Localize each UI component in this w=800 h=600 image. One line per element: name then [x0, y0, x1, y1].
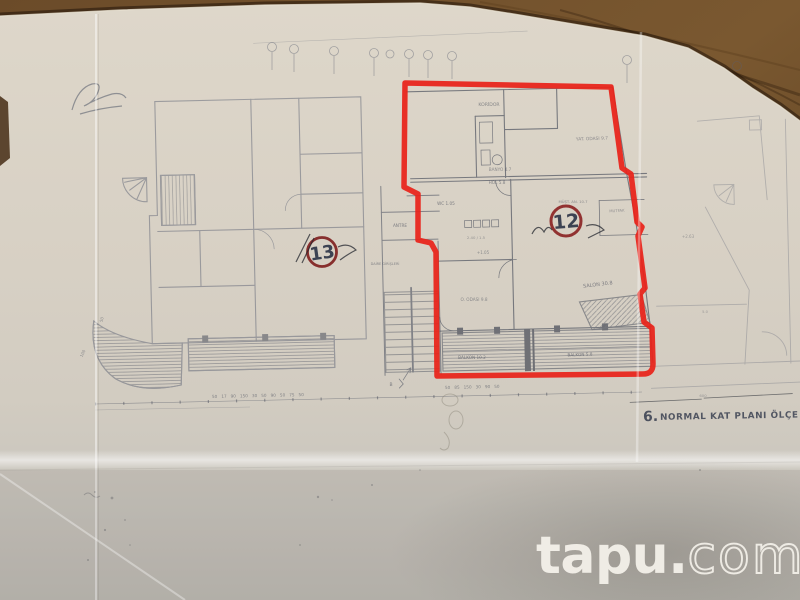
plan-room-label: 2.40 / 1.5 [467, 235, 486, 240]
unit-13-number: 13 [308, 241, 336, 265]
floor-plan-scene: 50 17 90 150 30 50 90 50 75 50 50 85 150… [0, 0, 800, 600]
plan-room-label: MUTFAK [609, 208, 625, 214]
plan-room-label: ANTRE [393, 223, 407, 228]
plan-room-label: 600 [699, 393, 707, 398]
plan-room-label: YAT. ODASI 9.7 [575, 135, 609, 142]
unit-12-number: 12 [552, 210, 580, 234]
plan-room-label: MÜŞT. AN. 10.7 [558, 199, 588, 204]
plan-room-label: KORİDOR [478, 101, 500, 108]
tapu-watermark: tapu.com [536, 526, 800, 586]
plan-room-label: BALKON 5.8 [567, 352, 593, 358]
plan-room-label: DAİRE GİRİŞLERİ [371, 261, 400, 266]
plan-room-label: WC 1.05 [437, 201, 455, 206]
plan-room-label: O. ODASI 9.8 [461, 297, 488, 302]
plan-room-label: +2.63 [682, 234, 695, 239]
watermark-dot: . [668, 526, 687, 586]
watermark-tapu: tapu [536, 526, 668, 586]
plan-room-label: HOL 5.8 [489, 180, 506, 185]
watermark-com: com [687, 526, 800, 586]
caption-number: 6. [643, 409, 658, 425]
plan-room-label: 5.0 [702, 310, 708, 314]
plan-room-label: BANYO 4.7 [489, 167, 512, 172]
plan-room-label: BALKON 10.2 [458, 355, 486, 360]
plan-room-label: B [389, 382, 392, 388]
photo-of-floor-plan: 50 17 90 150 30 50 90 50 75 50 50 85 150… [0, 0, 800, 600]
plan-room-label: +1.05 [477, 250, 490, 255]
